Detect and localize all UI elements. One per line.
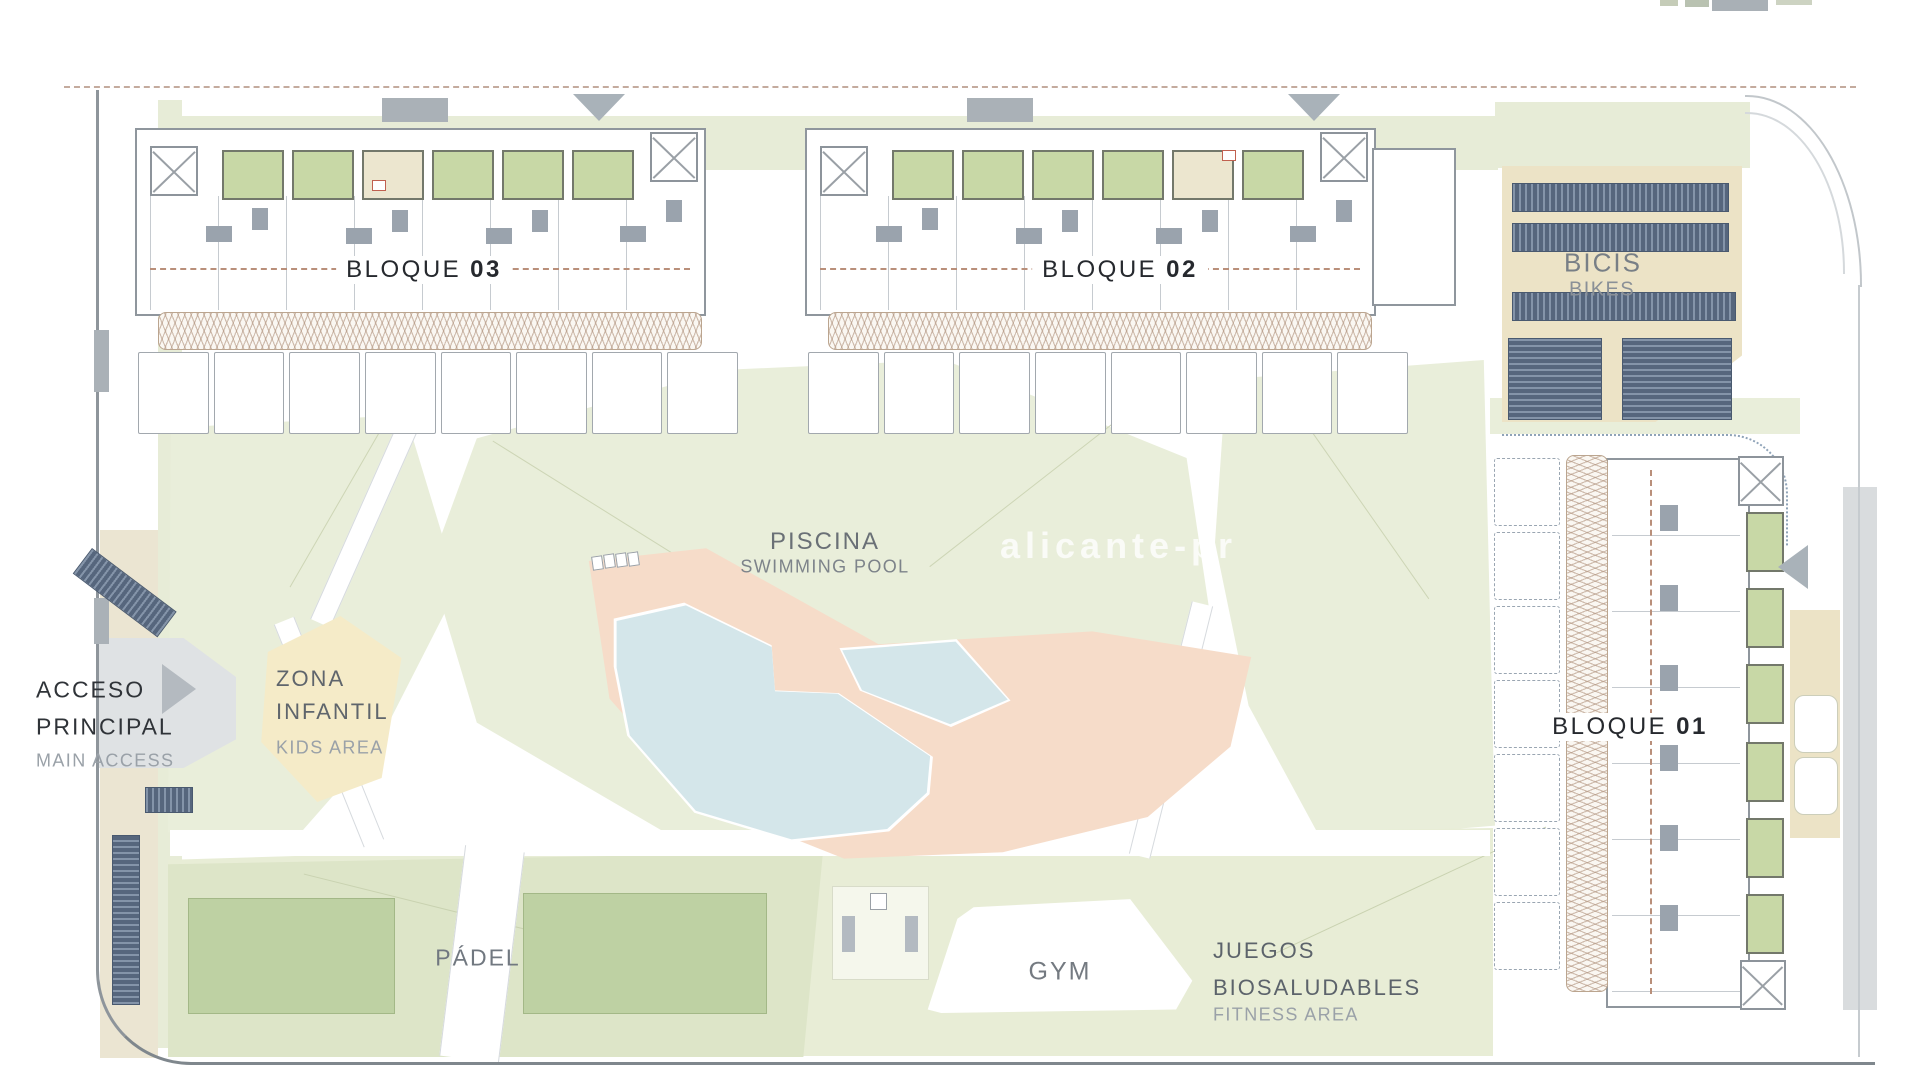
bloque01-ac-unit bbox=[1660, 585, 1678, 611]
bloque01-garden bbox=[1746, 818, 1784, 878]
zona-infantil-label-line2: INFANTIL bbox=[276, 699, 389, 725]
bloque03-garden bbox=[572, 150, 634, 200]
bloque03-ac-unit bbox=[532, 210, 548, 232]
bloque02-unit-divisions bbox=[820, 196, 1360, 310]
bloque03-ac-unit bbox=[392, 210, 408, 232]
bloque02-label-name: BLOQUE bbox=[1042, 256, 1157, 283]
parking-space bbox=[1494, 606, 1560, 674]
parking-space bbox=[214, 352, 285, 434]
bloque03-ac-unit bbox=[666, 200, 682, 222]
bloque02-ac-unit bbox=[922, 208, 938, 230]
bloque02-parking-row bbox=[808, 352, 1408, 434]
acceso-principal-label-line2: PRINCIPAL bbox=[36, 714, 174, 741]
parking-space bbox=[1186, 352, 1257, 434]
bloque02-ac-unit bbox=[1016, 228, 1042, 244]
juegos-label-line2: BIOSALUDABLES bbox=[1213, 975, 1421, 1001]
gym-label: GYM bbox=[1029, 958, 1092, 987]
bloque01-stair-core-icon bbox=[1740, 960, 1786, 1010]
bloque01-ac-unit bbox=[1660, 665, 1678, 691]
bloque03-stair-core-icon bbox=[150, 146, 198, 196]
parking-space bbox=[1494, 902, 1560, 970]
bloque02-label-number: 02 bbox=[1166, 256, 1198, 283]
bloque01-ac-unit bbox=[1660, 505, 1678, 531]
parking-space bbox=[1111, 352, 1182, 434]
bloque03-label-number: 03 bbox=[470, 256, 502, 283]
bloque02-label: BLOQUE02 bbox=[1032, 256, 1208, 284]
acceso-principal-label-line1: ACCESO bbox=[36, 677, 145, 704]
parking-space bbox=[1494, 828, 1560, 896]
padel-label: PÁDEL bbox=[435, 945, 520, 972]
main-access-arrow-icon bbox=[162, 664, 196, 714]
bloque02-mailbox-icon bbox=[1222, 150, 1236, 161]
parking-space bbox=[1262, 352, 1333, 434]
bloque02-garden bbox=[1102, 150, 1164, 200]
juegos-label-line1: JUEGOS bbox=[1213, 938, 1315, 964]
fitness-area-label: FITNESS AREA bbox=[1213, 1005, 1359, 1026]
parking-space bbox=[138, 352, 209, 434]
left-edge-utility-tab bbox=[94, 330, 109, 392]
bloque01-garden bbox=[1746, 742, 1784, 802]
bloque02-garden bbox=[1032, 150, 1094, 200]
parking-space bbox=[1035, 352, 1106, 434]
bike-rack bbox=[1512, 183, 1729, 212]
bloque02-annex bbox=[1372, 148, 1456, 306]
pool-steps-icon bbox=[627, 551, 640, 566]
bloque03-ac-unit bbox=[252, 208, 268, 230]
bloque03-parking-row bbox=[138, 352, 738, 434]
bloque01-label-number: 01 bbox=[1676, 713, 1708, 740]
bloque03-mailbox-icon bbox=[372, 180, 386, 191]
bloque01-entrance-arrow-icon bbox=[1778, 545, 1808, 589]
bloque02-garden bbox=[892, 150, 954, 200]
bloque02-ac-unit bbox=[1290, 226, 1316, 242]
bloque01-stair-core-icon bbox=[1738, 456, 1784, 506]
bikes-label: BIKES bbox=[1569, 279, 1635, 302]
bloque02-ac-unit bbox=[1336, 200, 1352, 222]
offsite-structure bbox=[1712, 0, 1768, 11]
parking-space bbox=[1494, 458, 1560, 526]
bicis-label: BICIS bbox=[1564, 248, 1642, 279]
offsite-fragment bbox=[1685, 0, 1709, 7]
entrance-canopy bbox=[967, 98, 1033, 122]
bloque03-garden bbox=[222, 150, 284, 200]
bike-rack bbox=[1622, 338, 1732, 420]
parking-rack bbox=[112, 835, 140, 1005]
parking-space bbox=[516, 352, 587, 434]
parking-space bbox=[1494, 754, 1560, 822]
bloque02-ac-unit bbox=[1156, 228, 1182, 244]
parking-space bbox=[289, 352, 360, 434]
bloque01-ac-unit bbox=[1660, 905, 1678, 931]
zona-infantil-label-line1: ZONA bbox=[276, 666, 345, 692]
bike-rack bbox=[1508, 338, 1602, 420]
parking-space bbox=[884, 352, 955, 434]
bloque01-ac-unit bbox=[1660, 825, 1678, 851]
pool-steps-icon bbox=[591, 555, 604, 570]
bloque01-garden bbox=[1746, 894, 1784, 954]
left-edge-utility-tab bbox=[94, 598, 109, 644]
offsite-fragment bbox=[1776, 0, 1812, 5]
bloque03-label-name: BLOQUE bbox=[346, 256, 461, 283]
entrance-canopy bbox=[382, 98, 448, 122]
bloque02-stair-core-icon bbox=[820, 146, 868, 196]
bloque03-stair-core-icon bbox=[650, 132, 698, 182]
parking-space bbox=[667, 352, 738, 434]
site-plan: BLOQUE03 BLOQUE02 bbox=[0, 0, 1920, 1080]
bloque03-ac-unit bbox=[620, 226, 646, 242]
bloque03-terrace-strip bbox=[158, 312, 702, 350]
pool-steps-icon bbox=[603, 553, 616, 568]
bloque03-ac-unit bbox=[346, 228, 372, 244]
bloque02-ac-unit bbox=[1062, 210, 1078, 232]
parking-space bbox=[365, 352, 436, 434]
bloque02-ac-unit bbox=[876, 226, 902, 242]
bloque01-garden bbox=[1746, 664, 1784, 724]
parking-space bbox=[1337, 352, 1408, 434]
entrance-arrow-down-icon bbox=[573, 94, 625, 121]
bloque03-garden bbox=[502, 150, 564, 200]
bloque01-ac-unit bbox=[1660, 745, 1678, 771]
bloque03-unit-divisions bbox=[150, 196, 690, 310]
bloque03-garden bbox=[432, 150, 494, 200]
bloque02-garden bbox=[1242, 150, 1304, 200]
bloque02-terrace-strip bbox=[828, 312, 1372, 350]
bloque01-garden bbox=[1746, 588, 1784, 648]
bloque03-garden bbox=[292, 150, 354, 200]
entrance-arrow-down-icon bbox=[1288, 94, 1340, 121]
parking-space bbox=[1494, 532, 1560, 600]
parking-space bbox=[592, 352, 663, 434]
bloque02-ac-unit bbox=[1202, 210, 1218, 232]
piscina-label: PISCINA bbox=[770, 528, 880, 556]
parking-space bbox=[959, 352, 1030, 434]
bloque01-label-name: BLOQUE bbox=[1552, 713, 1667, 740]
parking-rack bbox=[145, 787, 193, 813]
bloque03-ac-unit bbox=[486, 228, 512, 244]
kids-area-label: KIDS AREA bbox=[276, 738, 384, 759]
north-boundary-dashed-line bbox=[64, 86, 1856, 88]
swimming-pool-label: SWIMMING POOL bbox=[740, 557, 909, 578]
main-access-label: MAIN ACCESS bbox=[36, 751, 174, 772]
parking-space bbox=[441, 352, 512, 434]
bloque03-label: BLOQUE03 bbox=[336, 256, 512, 284]
bloque02-garden bbox=[962, 150, 1024, 200]
bloque02-stair-core-icon bbox=[1320, 132, 1368, 182]
offsite-fragment bbox=[1660, 0, 1678, 6]
pool-steps-icon bbox=[615, 552, 628, 567]
parking-space bbox=[808, 352, 879, 434]
bloque01-label: BLOQUE01 bbox=[1542, 713, 1718, 741]
bloque03-garden bbox=[362, 150, 424, 200]
bloque03-ac-unit bbox=[206, 226, 232, 242]
